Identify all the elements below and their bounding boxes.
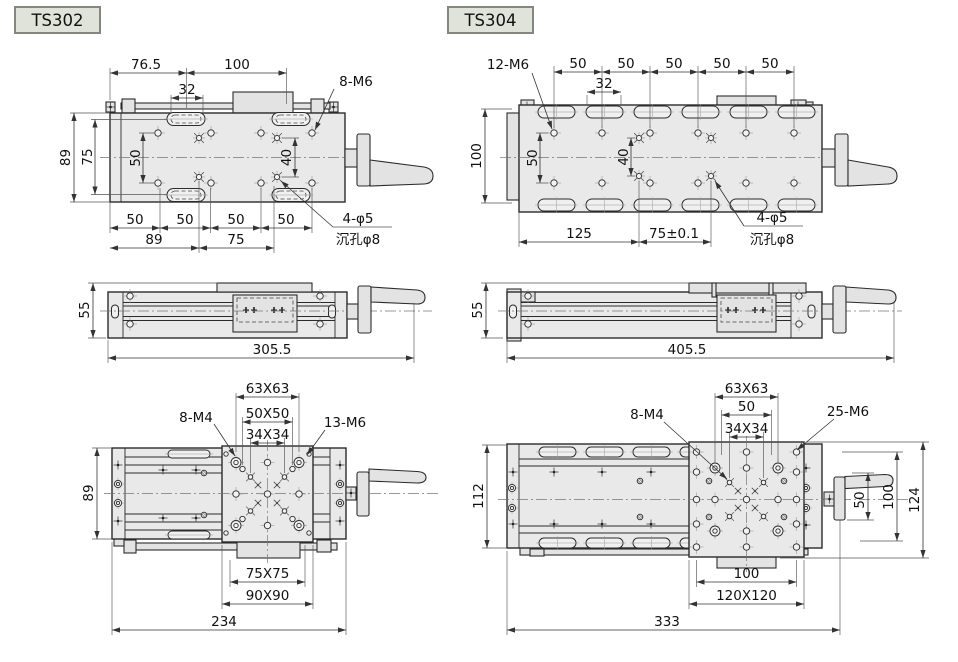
handle-shaft	[822, 149, 835, 167]
dim-label: 50	[665, 56, 682, 72]
plate-hole-pattern	[224, 452, 311, 535]
dim-label: 75±0.1	[649, 226, 699, 242]
carriage	[717, 295, 776, 332]
dim-label: 76.5	[131, 57, 161, 73]
bottom-tab	[237, 541, 300, 558]
handle-grip	[369, 469, 426, 483]
ts302-side-view: 55 305.5	[77, 283, 432, 363]
dim-label: 50	[176, 212, 193, 228]
counterbore-callout: 4-φ5	[757, 210, 788, 226]
handle-shaft	[345, 149, 358, 167]
thread-callout: 8-M4	[179, 410, 213, 426]
carriage	[233, 295, 297, 332]
thread-callout: 13-M6	[324, 415, 366, 431]
dim-label: 55	[470, 301, 486, 318]
dim-label: 40	[616, 148, 632, 165]
dim-label: 50	[227, 212, 244, 228]
handle-grip	[846, 287, 896, 304]
dim-label: 100	[881, 484, 897, 510]
dim-label: 40	[279, 149, 295, 166]
thread-callout: 12-M6	[487, 57, 529, 73]
handle-grip	[371, 287, 425, 304]
handle-hub	[357, 134, 370, 186]
dim-label: 120X120	[716, 588, 777, 604]
dim-label: 50	[738, 399, 755, 415]
rod-clamp	[122, 99, 135, 113]
thread-callout: 25-M6	[827, 404, 869, 420]
lead-screw-rod	[121, 103, 330, 109]
dim-label: 100	[734, 566, 760, 582]
ts302-top-view: 76.5 100 32 8-M6 89 75 50 40 50 50 50 50…	[58, 57, 433, 253]
catalog-page: TS302 TS304	[0, 0, 958, 662]
handle-hub	[834, 477, 845, 520]
dim-label: 124	[907, 487, 923, 513]
dim-label: 89	[81, 484, 97, 501]
stage-body	[108, 292, 347, 338]
table-plate	[217, 283, 312, 292]
handle-hub	[835, 134, 848, 186]
ts304-bottom-view: 63X63 50 34X34 8-M4 25-M6 112 50 100 124…	[471, 381, 929, 635]
dim-label: 50	[126, 212, 143, 228]
ts304-side-view: 55 405.5	[470, 283, 902, 363]
dim-label: 50	[713, 56, 730, 72]
motor-block	[717, 96, 776, 105]
drawings-canvas: 76.5 100 32 8-M6 89 75 50 40 50 50 50 50…	[0, 0, 958, 662]
dim-label: 75	[80, 148, 96, 165]
dim-label: 50	[761, 56, 778, 72]
counterbore-callout: 沉孔φ8	[750, 232, 795, 248]
dim-label: 75	[227, 232, 244, 248]
dim-label: 34X34	[246, 427, 290, 443]
handle-grip	[370, 160, 433, 186]
dim-label: 50	[617, 56, 634, 72]
handle-hub	[357, 472, 369, 516]
dim-label: 32	[178, 82, 195, 98]
dim-label: 50	[569, 56, 586, 72]
dim-label: 89	[58, 149, 74, 166]
dim-label: 50	[525, 149, 541, 166]
dim-label: 50	[128, 149, 144, 166]
dim-label: 50X50	[246, 406, 290, 422]
dim-label: 125	[566, 226, 592, 242]
dim-label: 100	[224, 57, 250, 73]
handle-hub	[833, 286, 846, 333]
stage-body	[519, 105, 822, 212]
dim-label: 405.5	[668, 342, 707, 358]
handle-shaft	[822, 304, 833, 319]
handle-grip	[848, 160, 897, 186]
table-plate	[689, 283, 806, 293]
dim-label: 34X34	[725, 421, 769, 437]
thread-callout: 8-M4	[630, 407, 664, 423]
rod-clamp	[311, 99, 324, 113]
dim-label: 75X75	[246, 566, 290, 582]
dim-label: 112	[471, 483, 487, 509]
dim-label: 55	[77, 301, 93, 318]
counterbore-callout: 4-φ5	[343, 211, 374, 227]
dim-label: 333	[654, 614, 680, 630]
counterbore-callout: 沉孔φ8	[336, 232, 381, 248]
dim-label: 63X63	[246, 381, 290, 397]
motor-block	[233, 92, 293, 113]
ts302-bottom-view: 63X63 50X50 34X34 8-M4 13-M6 89 75X75 90…	[81, 381, 440, 635]
dim-label: 50	[277, 212, 294, 228]
thread-callout: 8-M6	[339, 74, 373, 90]
end-plate	[507, 113, 519, 200]
dim-label: 63X63	[725, 381, 769, 397]
dim-label: 32	[595, 76, 612, 92]
dim-label: 234	[211, 614, 237, 630]
dim-label: 100	[469, 143, 485, 169]
dim-label: 305.5	[253, 342, 292, 358]
dim-label: 50	[852, 491, 868, 508]
ts304-top-view: 12-M6 50 50 50 50 50 32 100 50 40 125 75…	[469, 56, 897, 248]
dim-label: 90X90	[246, 588, 290, 604]
dim-label: 89	[145, 232, 162, 248]
handle-hub	[358, 286, 371, 333]
handle-shaft	[347, 304, 358, 319]
